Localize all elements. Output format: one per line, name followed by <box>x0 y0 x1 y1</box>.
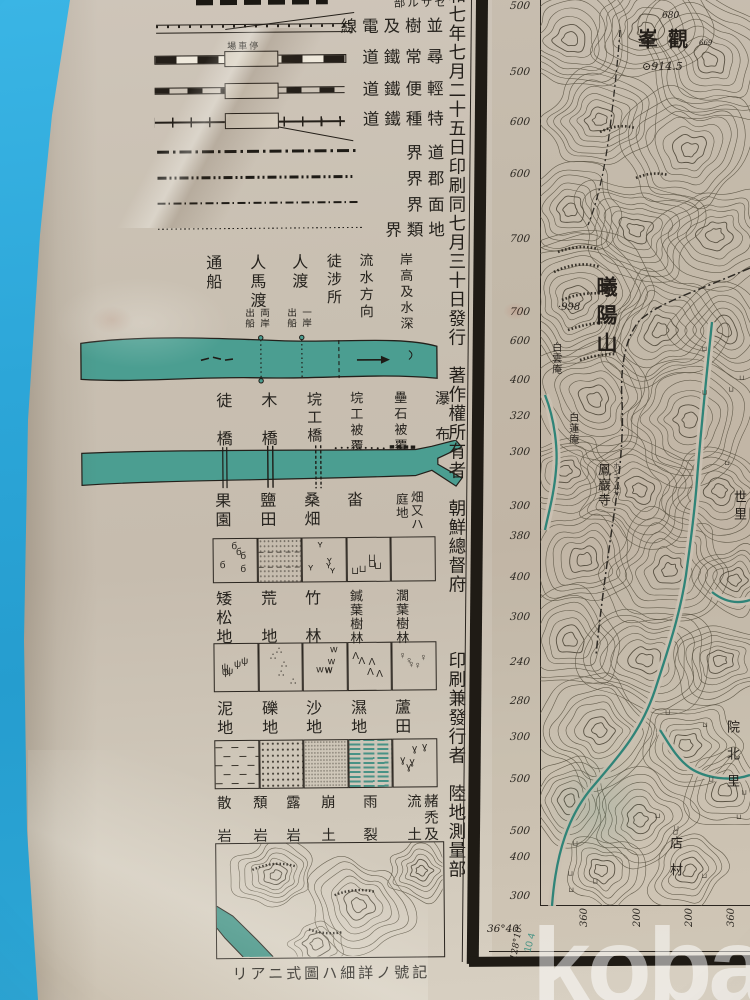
contour-line <box>578 385 608 415</box>
contour-line <box>619 217 653 244</box>
map-label: 世里 <box>733 490 746 524</box>
paddy-symbol: ⊔ <box>739 375 744 382</box>
river-legend-label: 徒涉所 <box>326 253 341 307</box>
river-legend-label: 人渡 <box>289 253 305 291</box>
land-symbol-mark: w <box>316 665 323 675</box>
contour-line <box>546 523 620 591</box>
land-legend-label: 濶葉樹林 <box>395 589 408 645</box>
edge-elevation-number: 300 <box>491 500 530 512</box>
legend-box <box>348 739 393 788</box>
paddy-symbol: ⊔ <box>568 887 573 894</box>
legend-box: ббббб <box>213 538 258 583</box>
contour-line <box>540 0 607 71</box>
contour-line <box>683 864 697 877</box>
paddy-symbol: ⊔ <box>708 776 713 783</box>
map-sheet-paper: 部ルサセ線電及樹並場車停道鐵常尋道鐵便輕道鐵種特界道界郡界面界類地 通船人馬渡出… <box>0 0 750 1000</box>
terrain-legend-label: 崩 土 <box>319 794 334 844</box>
contour-line <box>627 804 657 833</box>
legend-line-label: 道鐵便輕 <box>238 75 448 101</box>
bridge-legend-label: 木 橋 <box>258 392 274 449</box>
land-symbol-mark: ψ <box>234 660 241 670</box>
contour-line <box>302 932 330 957</box>
land-symbol-mark: Λ <box>376 670 383 680</box>
edge-elevation-number: 300 <box>491 611 530 623</box>
legend-box: ∴∴∴∴∴ <box>258 642 303 691</box>
edge-elevation-number: 700 <box>491 306 530 318</box>
land-legend-label: 桑畑 <box>301 491 317 529</box>
land-symbol-mark: Λ <box>367 667 374 677</box>
contour-line <box>681 143 698 157</box>
river-legend-label: 通船 <box>203 254 219 292</box>
contour-line <box>592 723 608 738</box>
river-legend-sublabel: 出船 <box>243 308 253 329</box>
contour-line <box>541 450 596 495</box>
contour-line <box>252 864 296 870</box>
land-legend-label: 鍼葉樹林 <box>349 589 362 645</box>
contour-line <box>570 546 599 573</box>
edge-elevation-number: 400 <box>491 851 530 863</box>
legend-box <box>257 537 302 582</box>
contour-line <box>632 483 647 497</box>
edge-elevation-number: 280 <box>491 695 530 707</box>
contour-line <box>264 864 288 885</box>
contour-line <box>653 555 684 583</box>
land-symbol-mark: ∴ <box>276 647 282 657</box>
land-symbol-mark: б <box>220 562 226 572</box>
contour-line <box>310 938 324 950</box>
contour-line <box>540 510 632 601</box>
map-label: ·998 <box>558 303 580 313</box>
land-symbol-mark: б <box>236 548 242 558</box>
land-symbol-mark: ʏ <box>308 563 313 573</box>
contour-line <box>617 523 718 609</box>
map-label: ホンアムサ <box>613 462 620 497</box>
land-legend-label: 庭地 <box>394 493 407 520</box>
edge-elevation-number: 600 <box>491 335 530 347</box>
edge-elevation-number: 300 <box>491 890 530 902</box>
contour-line <box>577 552 592 566</box>
contour-line <box>567 837 645 906</box>
land-symbol-mark: ∴ <box>290 678 296 688</box>
contour-line <box>612 211 663 250</box>
edge-elevation-number: 500 <box>491 825 530 837</box>
land-symbol-mark: w <box>325 666 332 676</box>
legend-footnote: リアニ式圖ハ細詳ノ號記 <box>216 961 446 984</box>
paddy-symbol: ⊔ <box>572 841 577 848</box>
contour-line <box>584 107 614 131</box>
map-label: 669 <box>699 40 712 47</box>
land-symbol-mark: Λ <box>369 658 376 668</box>
land-legend-label: 畓 <box>344 491 360 510</box>
land-symbol-mark: ψ <box>241 657 248 667</box>
edge-elevation-number: 400 <box>491 571 530 583</box>
paddy-symbol: ⊔ <box>724 460 729 467</box>
contour-line <box>552 24 585 52</box>
contour-line <box>599 506 729 623</box>
contour-line <box>628 301 696 360</box>
land-symbol-mark: ♀ <box>408 660 416 670</box>
edge-elevation-number: 500 <box>491 773 530 785</box>
contour-line <box>416 865 428 876</box>
legend-box: wwwww <box>303 642 348 691</box>
contour-line <box>662 562 678 576</box>
land-legend-label: 鹽田 <box>257 492 273 530</box>
land-symbol-mark: ɣ <box>406 762 411 772</box>
terrain-legend-label: 散 岩 <box>215 795 230 845</box>
contour-line <box>554 264 600 272</box>
contour-line <box>628 647 661 674</box>
edge-elevation-number: 600 <box>491 116 530 128</box>
contour-line <box>542 183 599 235</box>
contour-line <box>556 625 584 653</box>
land-symbol-mark: ψ <box>226 667 233 677</box>
land-legend-label: 畑又ハ <box>409 490 422 531</box>
contour-line <box>561 32 577 46</box>
contour-line <box>600 126 635 132</box>
contour-line <box>540 584 620 684</box>
contour-line <box>410 859 434 881</box>
contour-line <box>584 717 616 745</box>
legend-box: ΛΛΛΛΛ <box>347 642 392 691</box>
contour-line <box>673 134 707 163</box>
contour-line <box>705 228 724 242</box>
terrain-legend-label: 赭禿及 <box>422 793 437 843</box>
river-legend-label: 岸高及水深 <box>399 252 413 332</box>
legend-line-label: 界道 <box>239 139 449 165</box>
terrain-example-drawing <box>216 842 443 957</box>
contour-line <box>270 870 282 881</box>
land-symbol-mark: ⊔ <box>351 567 359 577</box>
land-legend-label: 礫地 <box>259 700 275 738</box>
contour-line <box>577 100 622 137</box>
contour-line <box>686 215 743 259</box>
legend-box: ⊔⊔⊔⊔⊔ <box>346 537 391 582</box>
paddy-symbol: ⊔ <box>592 878 597 885</box>
map-label: 院北里 <box>726 720 739 801</box>
land-symbol-mark: ɣ <box>400 756 405 766</box>
paddy-symbol: ⊔ <box>702 389 707 396</box>
land-symbol-mark: ⊔ <box>359 565 367 575</box>
edge-elevation-number: 400 <box>491 374 530 386</box>
land-symbol-mark: ♀ <box>420 653 428 663</box>
land-symbol-mark: б <box>240 565 246 575</box>
terrain-legend-label: 雨 裂 <box>361 794 376 844</box>
map-label: 店村 <box>669 836 682 890</box>
paddy-symbol: ⊔ <box>702 346 707 353</box>
land-legend-label: 蘆田 <box>392 699 408 737</box>
legend-line-row: 界類地 <box>0 216 450 262</box>
contour-line <box>702 52 718 66</box>
paddy-symbol: ⊔ <box>736 814 741 821</box>
edge-elevation-number: 320 <box>491 410 530 422</box>
contour-line <box>563 632 578 646</box>
legend-line-label: 界郡 <box>239 165 449 191</box>
contour-line <box>559 465 572 476</box>
legend-line-symbols: 部ルサセ線電及樹並場車停道鐵常尋道鐵便輕道鐵種特界道界郡界面界類地 <box>0 0 476 2</box>
map-label: 白蓮庵 <box>567 412 577 445</box>
land-symbol-mark: ♀ <box>399 651 407 661</box>
contour-line <box>636 654 653 667</box>
legend-line-label: 線電及樹並 <box>238 12 448 38</box>
edge-elevation-number: 600 <box>491 168 530 180</box>
river-legend-sublabel: 両岸 <box>258 308 268 329</box>
terrain-example-box <box>215 841 445 959</box>
paddy-symbol: ⊔ <box>665 709 670 716</box>
contour-line <box>682 412 698 428</box>
contour-line <box>625 476 655 504</box>
contour-line <box>351 898 366 913</box>
legend-line-label: 界類地 <box>240 216 450 242</box>
legend-line-label: 道鐵種特 <box>239 105 449 131</box>
contour-line <box>294 926 337 957</box>
edge-elevation-number: 700 <box>491 233 530 245</box>
terrain-legend-label: 頽 岩 <box>251 795 266 845</box>
paddy-symbol: ⊔ <box>567 871 572 878</box>
land-legend-label: 竹 林 <box>302 589 318 646</box>
contour-line <box>609 518 724 616</box>
legend-box <box>259 739 304 788</box>
contour-line <box>230 842 313 907</box>
contour-line <box>592 113 607 125</box>
contour-line <box>549 618 592 659</box>
river-band-bridges <box>80 440 470 495</box>
contour-line <box>644 315 678 346</box>
contour-line <box>594 865 607 877</box>
legend-box: ʏʏʏʏʏ <box>302 537 347 582</box>
paddy-symbol: ⊔ <box>702 873 707 880</box>
edge-elevation-number: 240 <box>491 656 530 668</box>
map-label: 峯觀 <box>638 30 698 50</box>
terrain-legend-label: 流 土 <box>405 793 420 843</box>
legend-box <box>303 739 348 788</box>
paddy-symbol: ⊔ <box>728 386 733 393</box>
legend-area: 部ルサセ線電及樹並場車停道鐵常尋道鐵便輕道鐵種特界道界郡界面界類地 通船人馬渡出… <box>0 0 485 1000</box>
river-legend-label: 流水方向 <box>359 253 374 321</box>
land-symbol-mark: ʏ <box>317 541 322 551</box>
paddy-symbol: ⊔ <box>741 790 746 797</box>
map-label: 白雲庵 <box>550 342 560 375</box>
contour-line <box>587 392 602 407</box>
river-legend-sublabel: 出船 <box>285 308 295 329</box>
contour-line <box>703 478 734 506</box>
map-label: ⊙914.5 <box>642 61 683 72</box>
contour-line <box>217 906 273 957</box>
bridge-legend-label: 垸工橋 <box>306 391 321 445</box>
contour-line <box>690 755 750 821</box>
contour-line <box>584 854 623 892</box>
contour-line <box>707 650 733 673</box>
land-symbol-mark: ∴ <box>270 652 276 662</box>
map-label: 曦陽山 <box>595 276 616 360</box>
contour-line <box>727 574 741 586</box>
legend-box <box>391 536 436 581</box>
contour-line <box>393 843 444 899</box>
contour-line <box>695 222 733 251</box>
paddy-symbol: ⊔ <box>702 722 707 729</box>
legend-box: ♀♀♀♀♀ <box>392 641 437 690</box>
land-legend-label: 濕地 <box>348 699 364 737</box>
edge-elevation-number: 300 <box>491 446 530 458</box>
contour-line <box>258 858 292 890</box>
land-symbol-mark: Λ <box>358 657 365 667</box>
contour-line <box>405 854 441 887</box>
land-legend-label: 果園 <box>212 492 228 530</box>
land-legend-label: 荒 地 <box>258 590 274 647</box>
contour-line <box>663 127 714 171</box>
contour-line <box>712 484 728 498</box>
edge-elevation-number: 380 <box>491 530 530 542</box>
edge-elevation-number: 300 <box>491 731 530 743</box>
river-band-navigation <box>79 326 440 393</box>
land-legend-label: 泥地 <box>214 700 230 738</box>
map-label: 鳳巖寺 <box>597 463 610 508</box>
contour-line <box>561 537 605 579</box>
contour-line <box>387 842 443 904</box>
contour-line <box>679 739 693 751</box>
contour-line <box>717 323 732 337</box>
land-symbol-mark: ⊔ <box>368 554 376 564</box>
contour-line <box>627 224 644 237</box>
edge-elevation-number: 500 <box>491 0 530 12</box>
topographic-contours: ⊔⊔⊔⊔⊔⊔⊔⊔⊔⊔⊔⊔⊔⊔⊔⊔⊔⊔ <box>540 0 750 906</box>
river-legend-label: 人馬渡 <box>247 254 263 311</box>
legend-box <box>214 740 259 789</box>
river-legend-sublabel: 一岸 <box>300 307 310 328</box>
contour-line <box>321 869 399 942</box>
contour-line <box>344 891 376 921</box>
contour-line <box>713 655 726 666</box>
legend-box: ψψψψψ <box>213 643 258 692</box>
contour-line <box>540 595 615 678</box>
contour-line <box>307 856 417 957</box>
bridge-legend-label: 徒 橋 <box>213 392 229 449</box>
contour-line <box>655 838 722 903</box>
legend-line-label: 道鐵常尋 <box>238 43 448 69</box>
land-legend-label: 沙地 <box>303 699 319 737</box>
photo-of-map: 部ルサセ線電及樹並場車停道鐵常尋道鐵便輕道鐵種特界道界郡界面界類地 通船人馬渡出… <box>0 0 750 1000</box>
contour-line <box>634 812 649 827</box>
land-symbol-mark: ʏ <box>326 561 331 571</box>
legend-box: ɣɣɣɣɣ <box>393 738 438 787</box>
legend-line-label: 界面 <box>239 191 449 217</box>
contour-line <box>564 794 575 807</box>
contour-line <box>720 567 748 591</box>
map-label: 680 <box>662 12 679 21</box>
land-legend-label: 矮松地 <box>213 590 229 647</box>
terrain-legend-label: 露 岩 <box>284 794 299 844</box>
land-symbol-mark: ∴ <box>278 670 284 680</box>
contour-line <box>700 646 739 678</box>
contour-line <box>556 196 583 222</box>
land-symbol-mark: ɣ <box>412 745 417 755</box>
edge-elevation-number: 500 <box>491 66 530 78</box>
land-symbol-mark: w <box>330 645 337 655</box>
land-symbol-mark: ɣ <box>422 742 427 752</box>
land-symbol-mark: Λ <box>352 652 359 662</box>
paddy-symbol: ⊔ <box>655 813 660 820</box>
auction-site-watermark: kobay <box>532 906 750 1000</box>
